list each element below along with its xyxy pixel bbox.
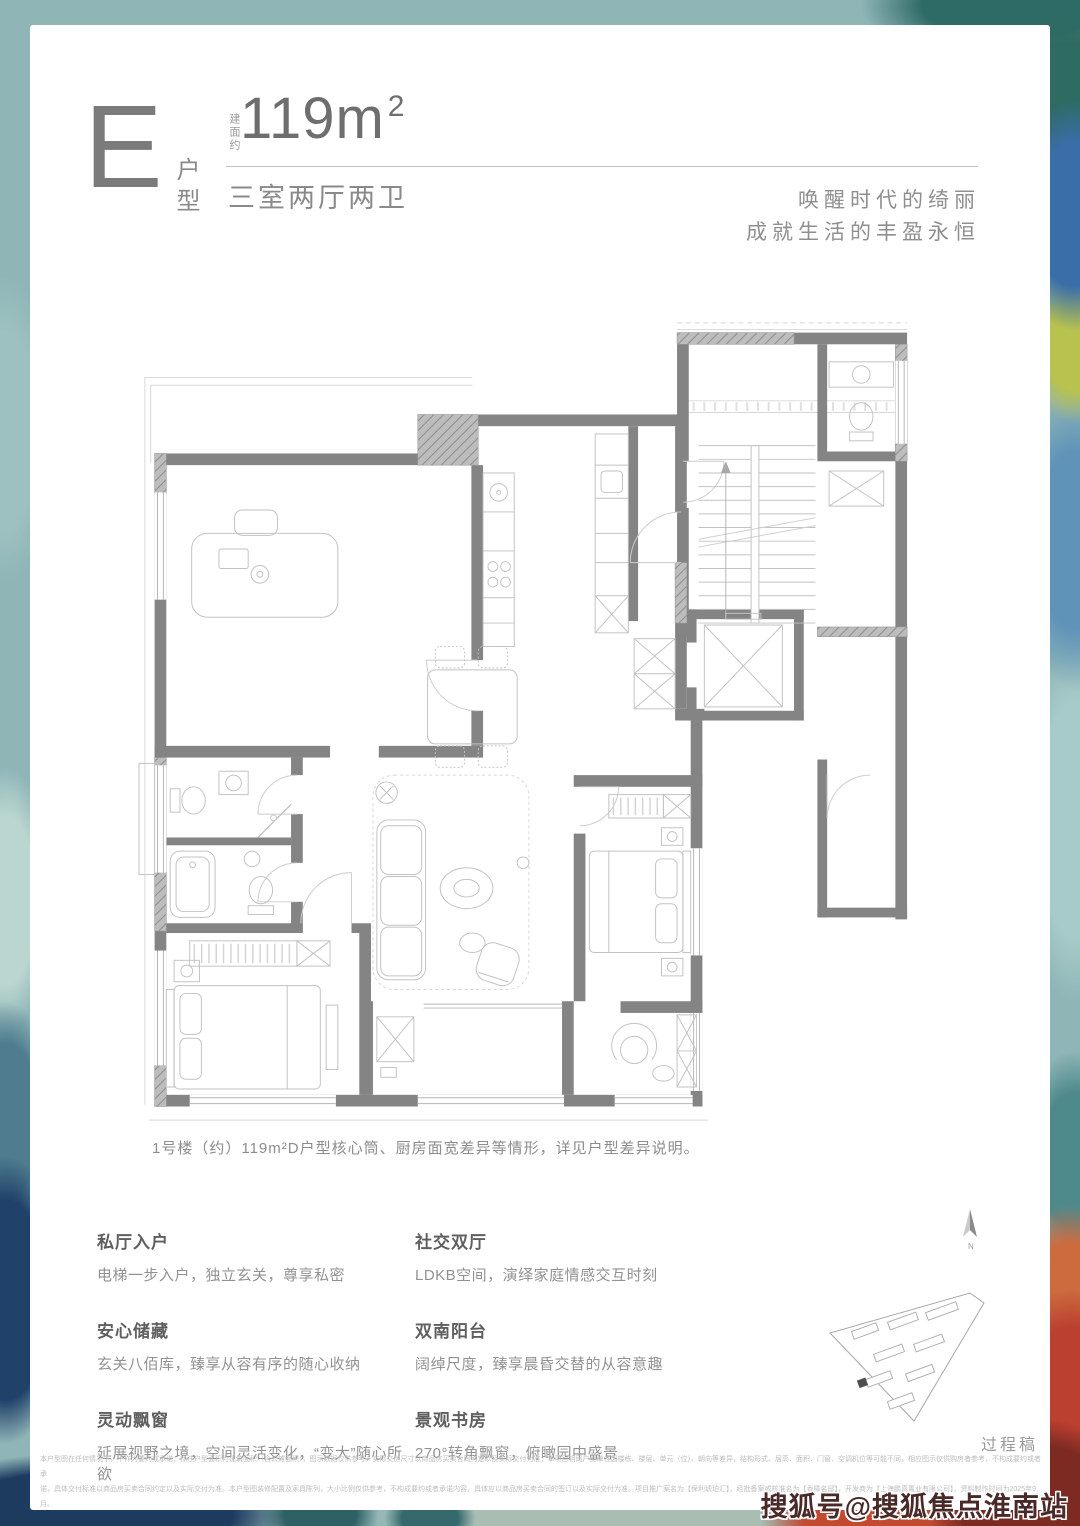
feature-social-halls: 社交双厅 LDKB空间，演绎家庭情感交互时刻: [415, 1228, 737, 1285]
feature-desc: 玄关八佰库，臻享从容有序的随心收纳: [97, 1353, 415, 1374]
balcony: [377, 1004, 562, 1077]
header-rule: [226, 166, 978, 167]
unit-type-label: 户型: [168, 157, 203, 219]
disclaimer-line-1: 本户型图在任何情况下，不作为要约或承诺；标注户型面积为建筑面积（含公摊面积），图…: [40, 1452, 1042, 1482]
feature-storage: 安心储藏 玄关八佰库，臻享从容有序的随心收纳: [97, 1317, 415, 1374]
flyer-page: E 户型 建面约 119m2 三室两厅两卫 唤醒时代的绮丽 成就生活的丰盈永恒: [30, 25, 1050, 1510]
slogan: 唤醒时代的绮丽 成就生活的丰盈永恒: [746, 185, 980, 249]
elevator: [704, 613, 782, 707]
slogan-line-2: 成就生活的丰盈永恒: [746, 217, 980, 249]
staircase: [698, 446, 815, 623]
floor-plan: [135, 317, 915, 1126]
feature-private-entry: 私厅入户 电梯一步入户，独立玄关，尊享私密: [97, 1228, 415, 1285]
plan-caption: 1号楼（约）119m²D户型核心筒、厨房面宽差异等情形，详见户型差异说明。: [152, 1137, 700, 1158]
layout-text: 三室两厅两卫: [228, 176, 408, 215]
bedroom2: [589, 795, 690, 976]
watermark: 搜狐号@搜狐焦点淮南站: [761, 1485, 1068, 1524]
kitchen: [483, 434, 628, 646]
bedroom1-furniture: [192, 510, 338, 617]
feature-title: 社交双厅: [415, 1228, 737, 1253]
feature-title: 灵动飘窗: [97, 1406, 415, 1431]
master-bedroom: [166, 941, 338, 1089]
north-arrow-icon: N: [952, 1203, 988, 1257]
unit-letter: E: [84, 97, 163, 197]
walls: [155, 333, 907, 1107]
slogan-line-1: 唤醒时代的绮丽: [746, 185, 980, 217]
site-key-plan: [822, 1287, 1050, 1435]
feature-list: 私厅入户 电梯一步入户，独立玄关，尊享私密 社交双厅 LDKB空间，演绎家庭情感…: [97, 1228, 737, 1484]
study: [612, 1015, 697, 1087]
area-value: 119m2: [240, 85, 402, 152]
area-superscript: 2: [388, 90, 406, 123]
foyer-storage: [634, 639, 675, 709]
doors: [258, 461, 870, 923]
exterior-trim-lines: [145, 323, 907, 1120]
core-bath: [829, 362, 893, 506]
feature-title: 安心储藏: [97, 1317, 415, 1342]
feature-desc: 阔绰尺度，臻享晨昏交替的从容意趣: [415, 1353, 737, 1374]
feature-desc: 电梯一步入户，独立玄关，尊享私密: [97, 1264, 415, 1285]
feature-title: 双南阳台: [415, 1317, 737, 1342]
feature-title: 私厅入户: [97, 1228, 415, 1253]
north-label: N: [968, 1242, 974, 1251]
living-room: [373, 775, 529, 989]
feature-title: 景观书房: [415, 1406, 737, 1431]
feature-south-balcony: 双南阳台 阔绰尺度，臻享晨昏交替的从容意趣: [415, 1317, 737, 1374]
feature-desc: LDKB空间，演绎家庭情感交互时刻: [415, 1264, 737, 1285]
area-number: 119m: [240, 86, 385, 151]
